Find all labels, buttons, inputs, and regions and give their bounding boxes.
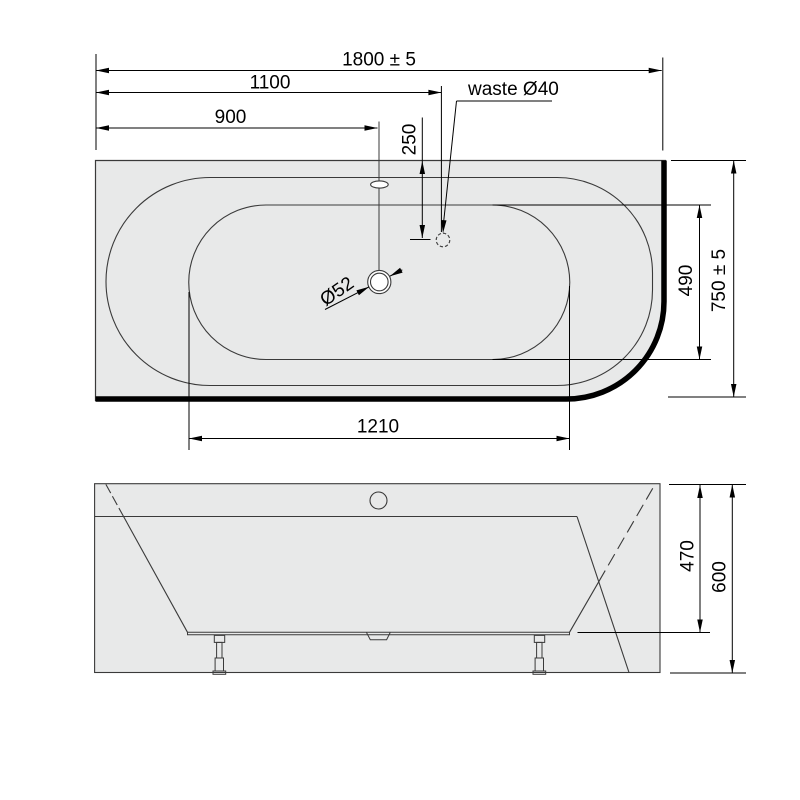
svg-text:600: 600 — [710, 561, 731, 593]
svg-text:waste Ø40: waste Ø40 — [467, 79, 559, 100]
svg-text:750 ± 5: 750 ± 5 — [709, 249, 730, 312]
svg-text:900: 900 — [215, 107, 247, 128]
svg-text:1210: 1210 — [357, 417, 399, 438]
svg-text:470: 470 — [678, 540, 699, 572]
svg-text:1800 ± 5: 1800 ± 5 — [342, 50, 416, 71]
svg-text:490: 490 — [676, 265, 697, 297]
svg-text:250: 250 — [400, 124, 421, 156]
svg-text:1100: 1100 — [250, 73, 291, 94]
